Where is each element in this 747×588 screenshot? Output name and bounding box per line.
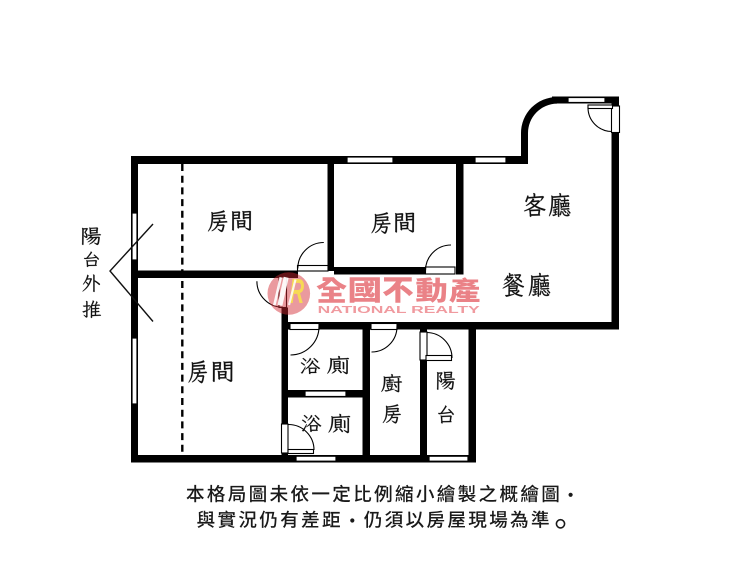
svg-text:NATIONAL REALTY: NATIONAL REALTY — [318, 305, 480, 316]
